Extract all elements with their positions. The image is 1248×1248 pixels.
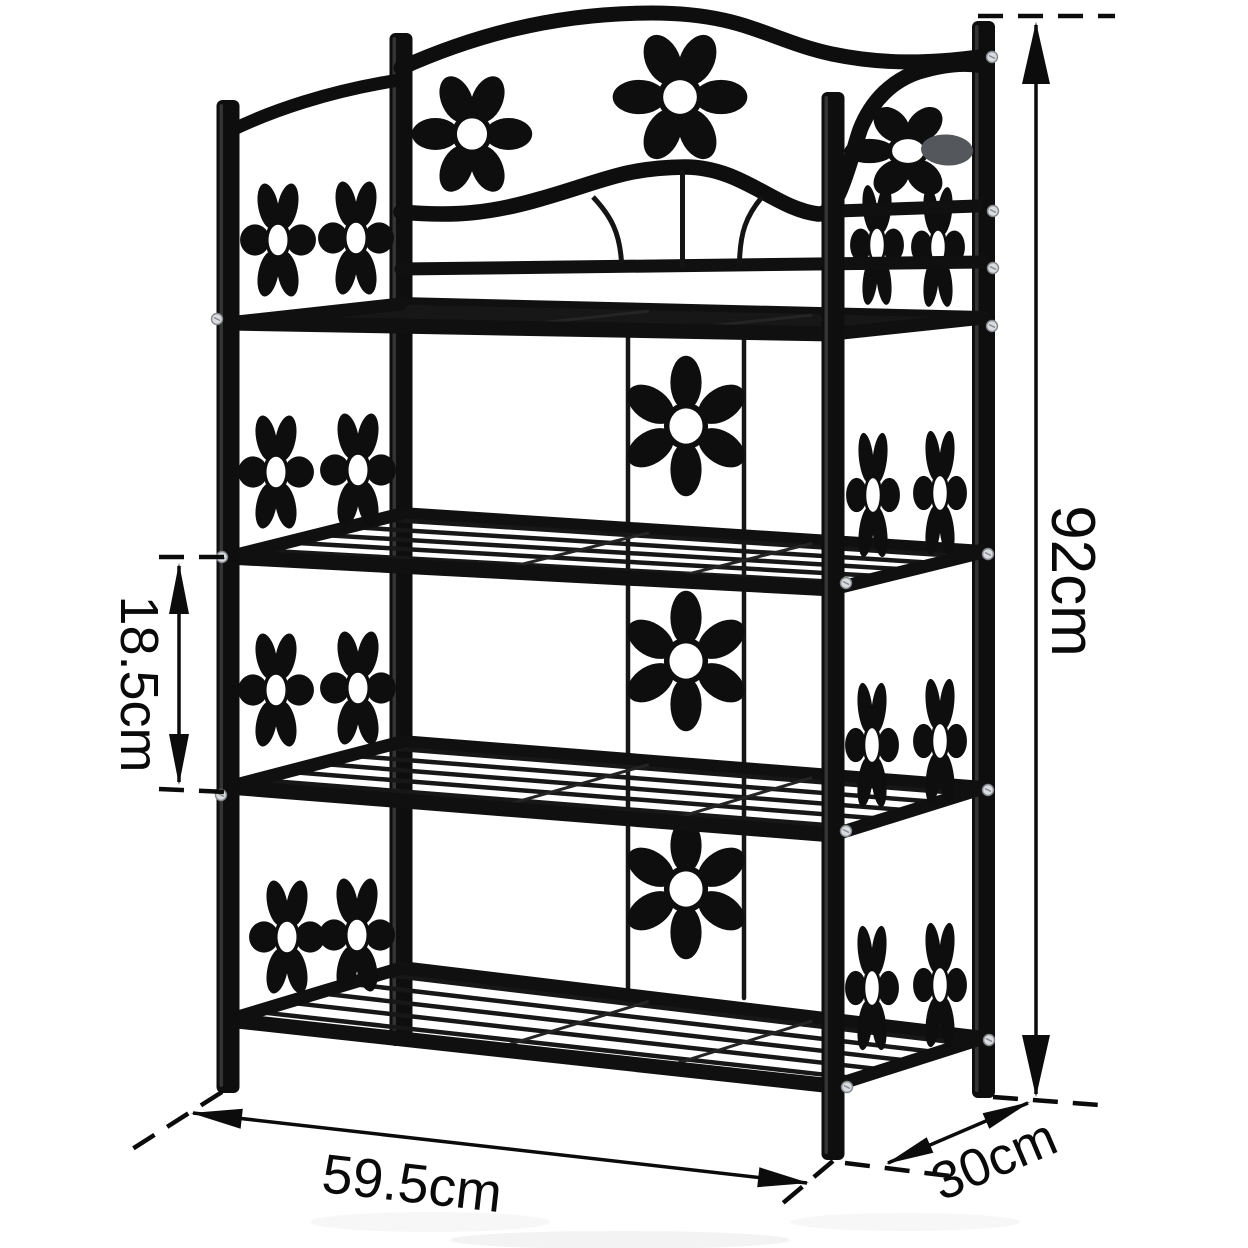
svg-text:18.5cm: 18.5cm [109, 595, 169, 772]
svg-text:92cm: 92cm [1038, 505, 1107, 657]
